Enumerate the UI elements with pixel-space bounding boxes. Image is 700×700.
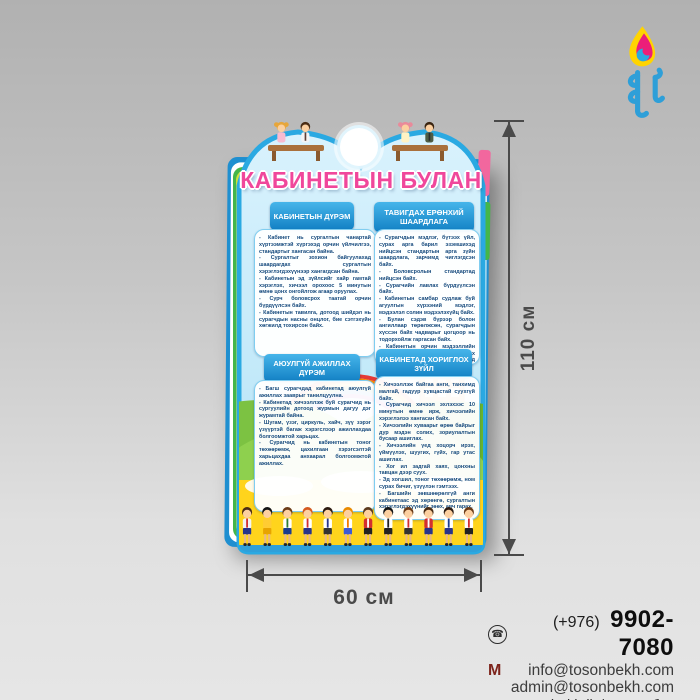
panel-header-requirements: ТАВИГДАХ ЕРӨНХИЙ ШААРДЛАГА (374, 202, 474, 232)
contact-block: ☎ (+976) 9902-7080 M info@tosonbekh.com … (488, 606, 674, 700)
panel-body-rules: - Кабинет нь сургалтын чанартай хүртээмж… (254, 229, 376, 357)
panel-header-safety: АЮУЛГҮЙ АЖИЛЛАХ ДҮРЭМ (264, 354, 360, 382)
height-label: 110 см (518, 305, 540, 372)
height-dimension: 110 см (494, 116, 554, 560)
width-dimension: 60 см (244, 558, 484, 610)
panel-header-prohibited: КАБИНЕТАД ХОРИГЛОХ ЗҮЙЛ (376, 349, 472, 379)
kids-pair-right-illustration (384, 120, 456, 164)
email-primary: info@tosonbekh.com (528, 663, 674, 679)
dimension-line (248, 574, 480, 576)
phone-country-code: (+976) (553, 614, 600, 631)
email-row-1: M info@tosonbekh.com (488, 663, 674, 679)
arrow-down-icon (502, 539, 516, 554)
phone-number: 9902-7080 (610, 606, 674, 661)
panel-header-rules: КАБИНЕТЫН ДҮРЭМ (270, 202, 354, 230)
sun-medallion (340, 128, 378, 166)
phone-row: ☎ (+976) 9902-7080 (488, 606, 674, 662)
panel-body-safety: - Багш сурагчдад кабинетад аюулгүй ажилл… (254, 380, 376, 512)
arrow-up-icon (502, 122, 516, 137)
poster-title: КАБИНЕТЫН БУЛАН (240, 167, 482, 194)
dimension-tick (494, 554, 524, 556)
dimension-line (508, 122, 510, 554)
product-mockup: КАБИНЕТЫН БУЛАН КАБИНЕТЫН ДҮРЭМ ТАВИГДАХ… (0, 0, 700, 700)
arrow-left-icon (249, 568, 264, 582)
students-row-illustration (238, 498, 484, 554)
kids-pair-left-illustration (260, 120, 332, 164)
panel-body-requirements: - Сурагчдын мэдлэг, бүтээх үйл, сурах ар… (374, 229, 480, 365)
toson-bekh-logo (612, 24, 676, 118)
email-row-2: admin@tosonbekh.com (488, 680, 674, 696)
email-secondary: admin@tosonbekh.com (511, 680, 674, 696)
gmail-icon: M (488, 663, 501, 679)
mongolian-script (630, 70, 662, 115)
phone-icon: ☎ (488, 625, 507, 644)
arrow-right-icon (464, 568, 479, 582)
width-label: 60 см (244, 586, 484, 610)
